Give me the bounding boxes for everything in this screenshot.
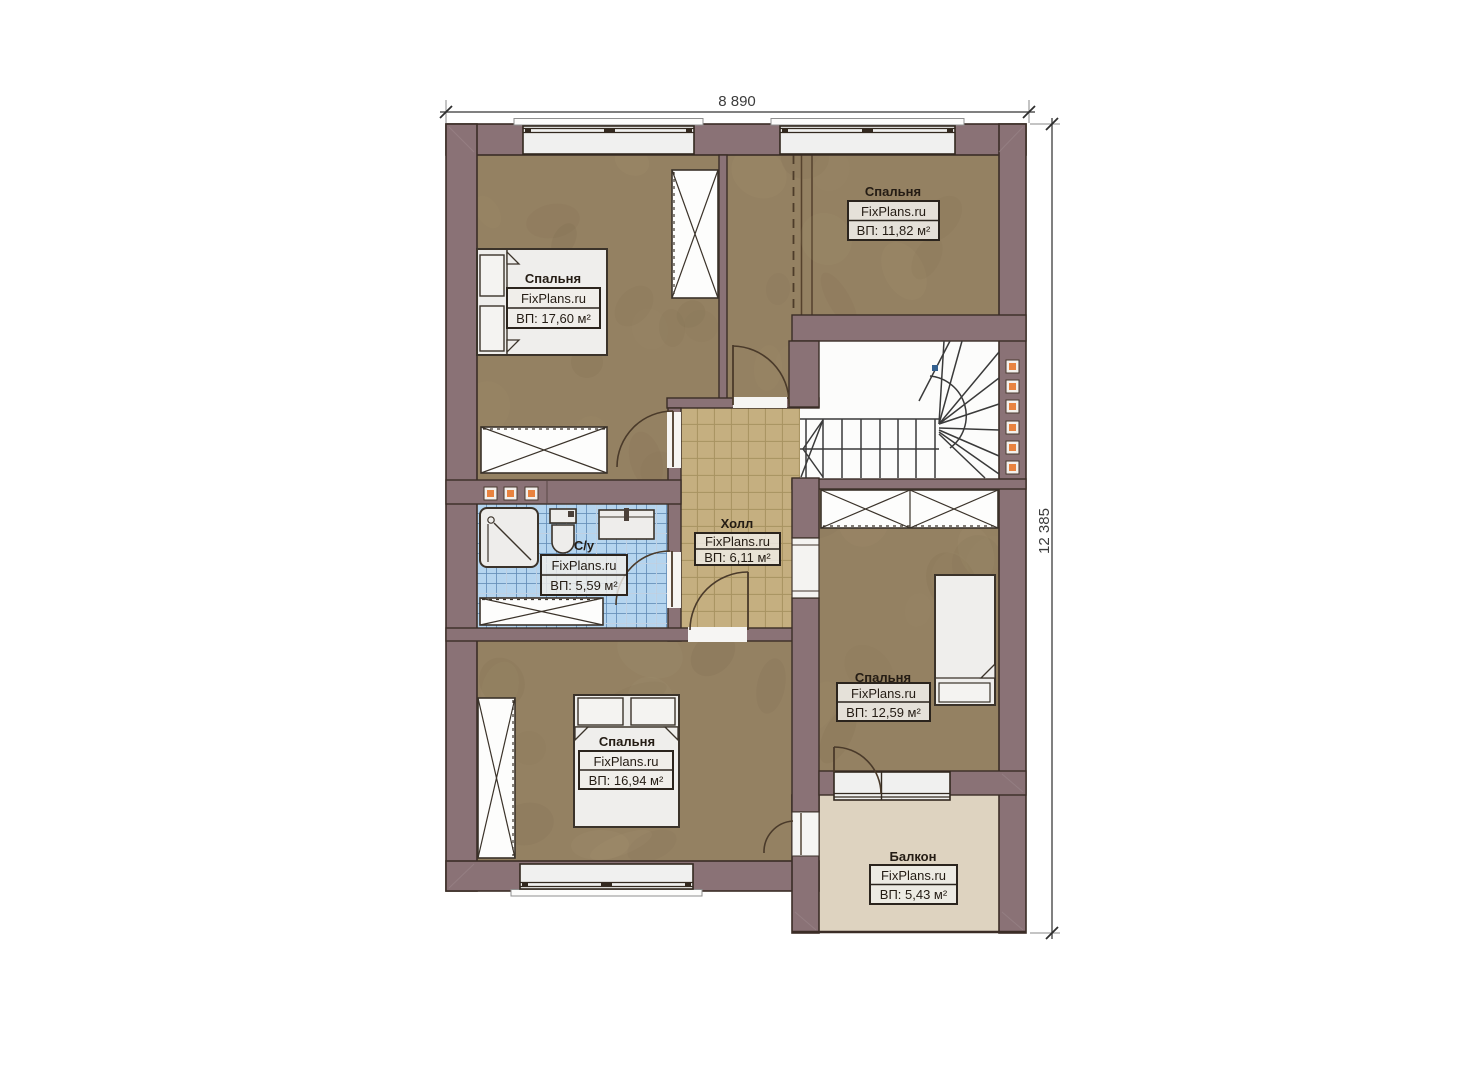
svg-text:ВП: 16,94 м²: ВП: 16,94 м² (589, 773, 664, 788)
svg-text:12 385: 12 385 (1036, 508, 1053, 554)
svg-text:Спальня: Спальня (525, 271, 581, 286)
svg-text:С/у: С/у (574, 538, 595, 553)
svg-text:ВП: 6,11 м²: ВП: 6,11 м² (704, 550, 771, 565)
svg-text:Холл: Холл (721, 516, 754, 531)
svg-text:ВП: 17,60 м²: ВП: 17,60 м² (516, 311, 591, 326)
svg-text:Спальня: Спальня (599, 734, 655, 749)
svg-text:FixPlans.ru: FixPlans.ru (881, 868, 946, 883)
svg-text:Балкон: Балкон (890, 849, 937, 864)
svg-text:ВП: 5,43 м²: ВП: 5,43 м² (880, 887, 948, 902)
svg-text:ВП: 12,59 м²: ВП: 12,59 м² (846, 705, 921, 720)
svg-text:FixPlans.ru: FixPlans.ru (551, 558, 616, 573)
svg-text:Спальня: Спальня (865, 184, 921, 199)
svg-text:FixPlans.ru: FixPlans.ru (705, 534, 770, 549)
svg-text:FixPlans.ru: FixPlans.ru (851, 686, 916, 701)
svg-text:8 890: 8 890 (718, 93, 756, 110)
svg-text:FixPlans.ru: FixPlans.ru (521, 291, 586, 306)
svg-text:ВП: 5,59 м²: ВП: 5,59 м² (550, 578, 618, 593)
svg-text:ВП: 11,82 м²: ВП: 11,82 м² (857, 223, 931, 238)
svg-text:FixPlans.ru: FixPlans.ru (593, 754, 658, 769)
svg-text:FixPlans.ru: FixPlans.ru (861, 204, 926, 219)
